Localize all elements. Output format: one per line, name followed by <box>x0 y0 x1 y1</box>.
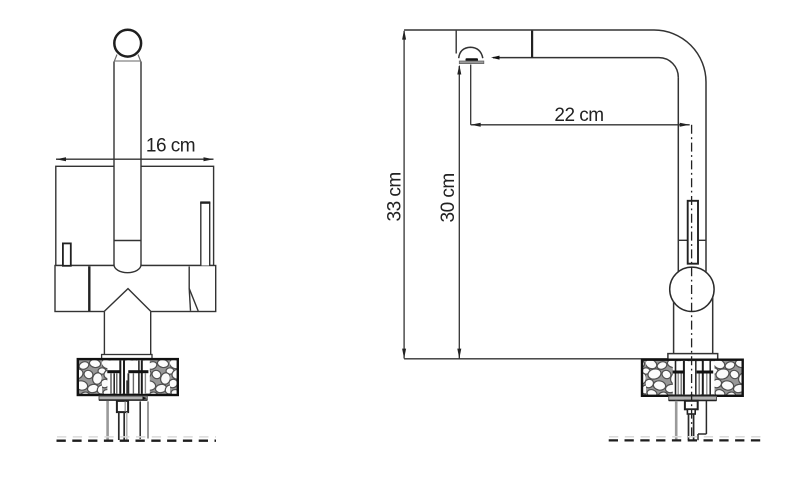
svg-text:33 cm: 33 cm <box>385 172 406 221</box>
svg-text:30 cm: 30 cm <box>438 173 459 222</box>
svg-text:16 cm: 16 cm <box>146 136 195 157</box>
svg-text:22 cm: 22 cm <box>554 105 603 126</box>
